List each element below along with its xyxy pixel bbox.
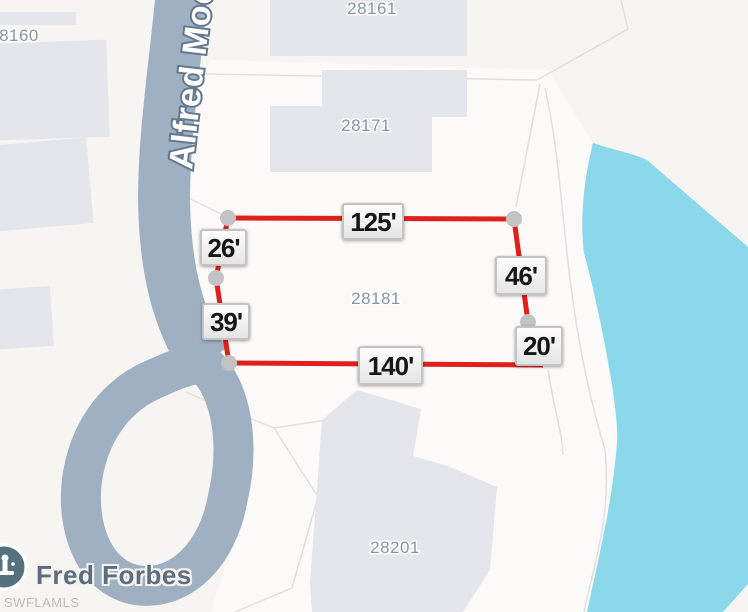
measurement-box-top: 125' xyxy=(342,203,404,240)
parcel-label-28161: 28161 xyxy=(347,0,397,18)
building-small-left xyxy=(0,286,54,350)
vertex-dot-bottom-left[interactable] xyxy=(221,355,237,371)
poi-icon-spray-right xyxy=(11,562,15,566)
map-layers: Alfred Moo 28160 28161 28171 28181 28201 xyxy=(0,0,748,612)
vertex-dot-top-left[interactable] xyxy=(220,210,236,226)
parcel-label-28181: 28181 xyxy=(351,289,401,308)
poi-icon-fountain-stem xyxy=(3,561,8,571)
measurement-box-right-upper: 46' xyxy=(495,256,547,295)
measurement-box-lower-left: 39' xyxy=(202,303,250,340)
measurement-box-right-lower-text: 20' xyxy=(523,333,555,359)
measurement-box-bottom: 140' xyxy=(358,346,423,385)
measurement-box-upper-left: 26' xyxy=(200,229,247,266)
map-canvas[interactable]: Alfred Moo 28160 28161 28171 28181 28201 xyxy=(0,0,748,612)
poi-icon-fountain-base xyxy=(0,571,14,575)
parcel-label-28201: 28201 xyxy=(370,538,420,557)
parcel-label-28171: 28171 xyxy=(341,116,391,135)
vertex-dot-left-mid[interactable] xyxy=(208,270,224,286)
parcel-label-28160: 28160 xyxy=(0,26,39,45)
building-28160-c xyxy=(0,137,94,231)
watermark-label: SWFLAMLS xyxy=(4,595,80,610)
building-28160-b xyxy=(0,40,110,141)
building-28160-a xyxy=(0,12,76,25)
poi-icon-fountain-top xyxy=(2,555,9,562)
vertex-dot-top-right[interactable] xyxy=(506,211,522,227)
poi-label-fred-forbes: Fred Forbes xyxy=(36,560,192,591)
measurement-box-right-lower: 20' xyxy=(515,326,563,366)
